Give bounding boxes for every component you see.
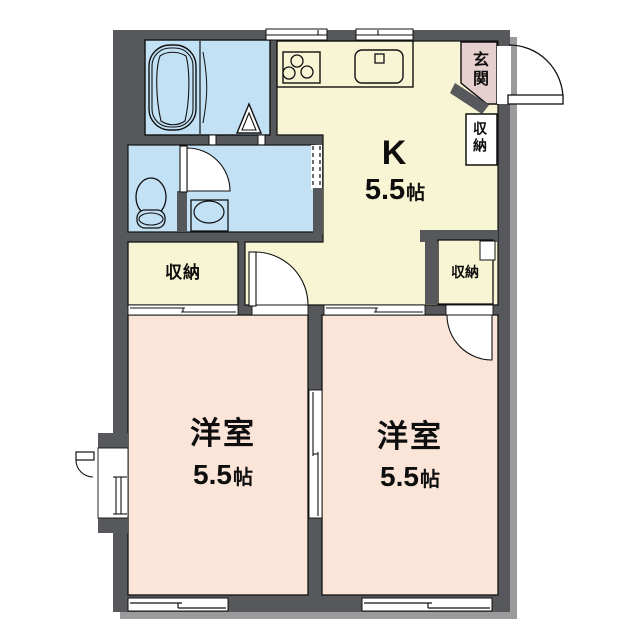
bedroom-left-size-label: 5.5帖 <box>161 461 285 489</box>
storage-right-notch <box>480 241 495 260</box>
bedroom-left-size-value: 5.5 <box>193 461 232 489</box>
bedroom-left-floor <box>128 315 308 595</box>
storage-entrance-label: 収納 <box>473 121 487 155</box>
storage-left-label: 収納 <box>133 264 233 281</box>
floorplan: K 5.5帖 洋室 5.5帖 洋室 5.5帖 玄関 収納 収納 収納 <box>0 0 640 640</box>
bay-opening <box>98 448 128 518</box>
toilet-door-leaf <box>180 146 187 192</box>
wall-stub <box>425 242 438 304</box>
bedroom-right-floor <box>322 315 498 595</box>
bath-door-jamb <box>258 135 265 145</box>
stove-burner-icon <box>291 55 303 67</box>
bath-door-jamb <box>209 135 216 145</box>
bay-door-swing <box>76 460 93 477</box>
bedroom-right-label: 洋室 <box>348 421 472 452</box>
bedroom-left-size-unit: 帖 <box>233 468 253 488</box>
kitchen-size-unit: 帖 <box>406 184 425 203</box>
storage-left-sliding-door <box>128 305 238 315</box>
bedroom-right-size-value: 5.5 <box>380 463 419 491</box>
entrance-label: 玄関 <box>470 51 486 89</box>
kitchen-window-left <box>266 29 327 40</box>
bedroom-left-label: 洋室 <box>161 418 285 449</box>
bay-door-leaf <box>76 452 94 460</box>
entrance-door-swing <box>509 45 563 99</box>
floorplan-drawing <box>0 0 640 640</box>
bay-wall-stub <box>98 518 128 533</box>
wall-stub <box>313 188 323 234</box>
bedroom-right-size-label: 5.5帖 <box>348 463 472 491</box>
bedroom-right-window <box>362 598 492 611</box>
toilet-seat-icon <box>139 213 163 225</box>
left-bay <box>76 433 128 533</box>
partition-sliding-door <box>309 390 322 518</box>
storage-right-label: 収納 <box>438 265 492 279</box>
stove-burner-icon <box>283 67 295 79</box>
kitchen-window-right <box>356 29 413 40</box>
faucet-icon <box>375 54 384 63</box>
wall-stub <box>177 191 187 232</box>
entrance-door-leaf <box>508 95 563 104</box>
stove-burner-icon <box>301 66 313 78</box>
bedroom-right-size-unit: 帖 <box>420 470 440 490</box>
kitchen-size-value: 5.5 <box>365 176 405 205</box>
bay-wall-stub <box>98 433 128 448</box>
kitchen-label: K <box>354 136 434 170</box>
washbasin-bowl-icon <box>194 201 224 223</box>
kitchen-size-label: 5.5帖 <box>343 176 447 205</box>
bedroom-right-sliding-door-top <box>324 305 425 315</box>
bedroom-left-window <box>128 598 228 611</box>
